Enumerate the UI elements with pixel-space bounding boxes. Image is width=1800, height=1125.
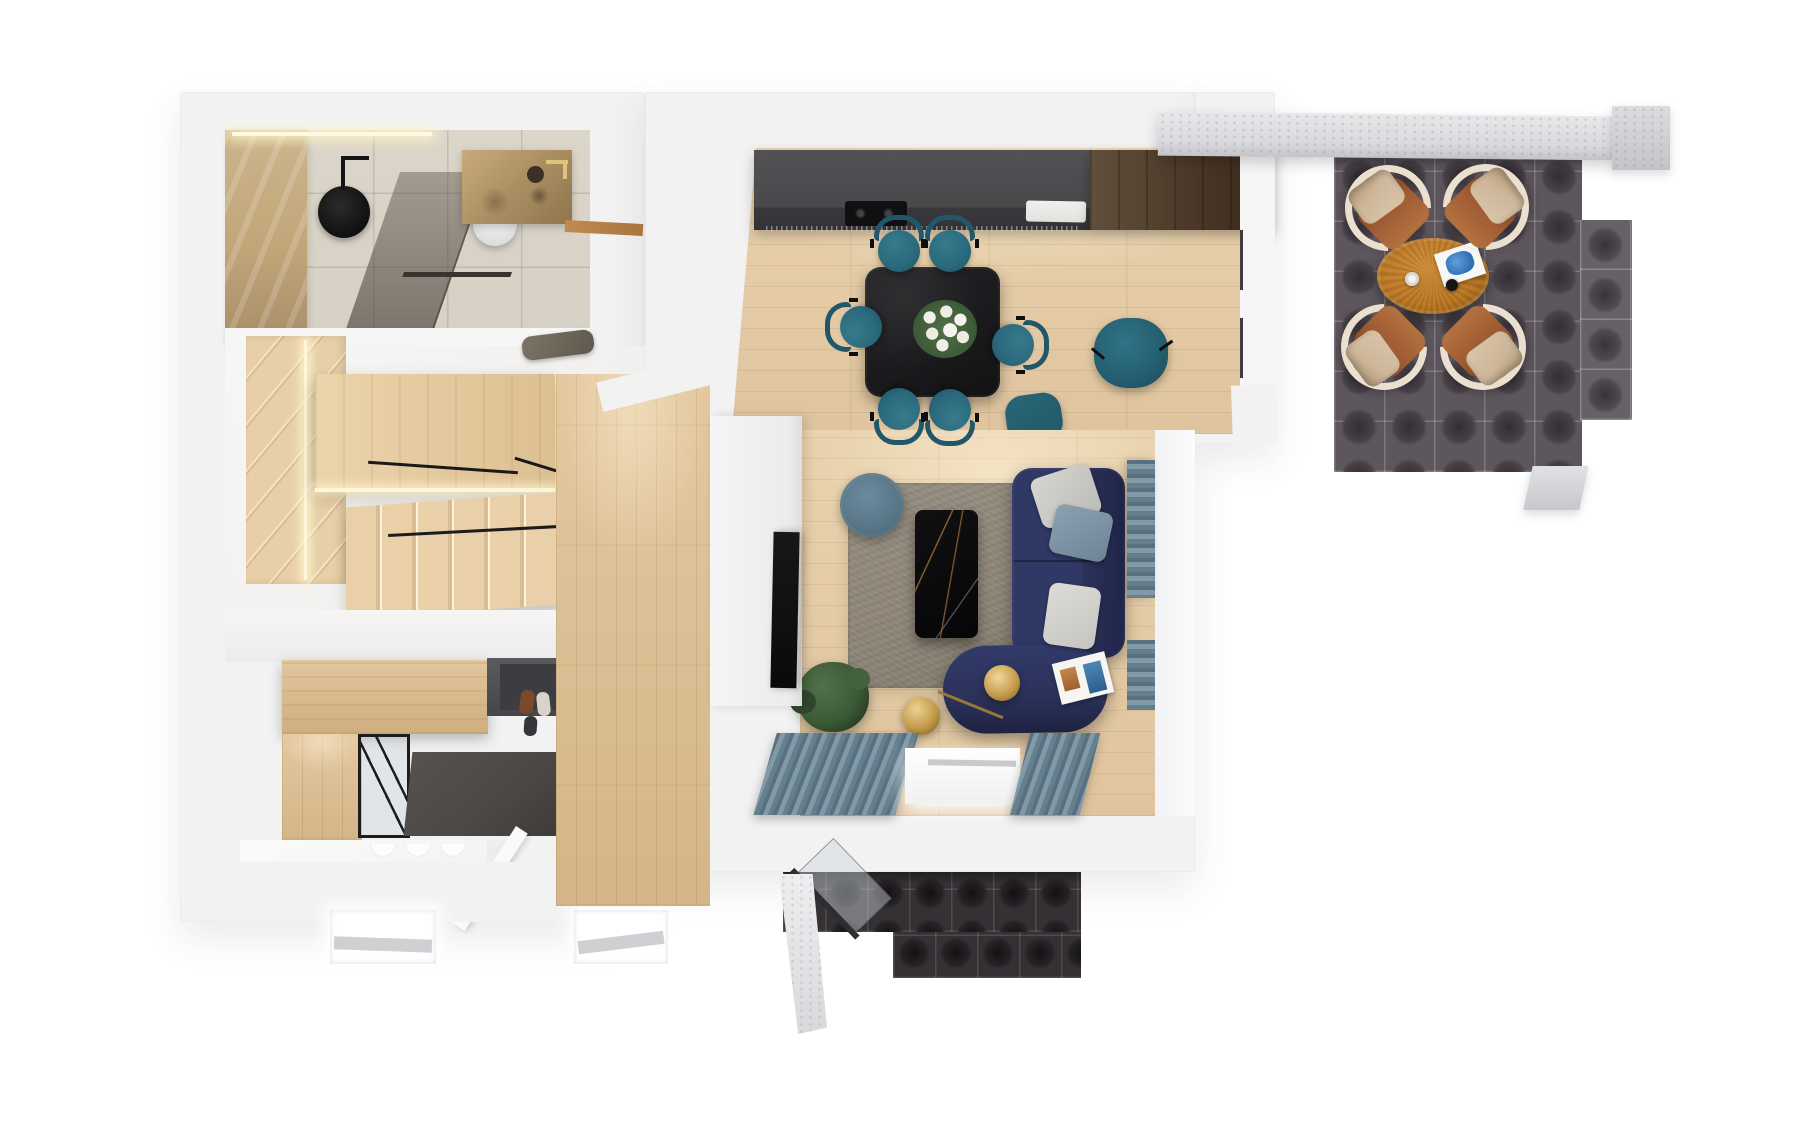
chair-leg <box>870 412 874 421</box>
chair-leg <box>1016 370 1025 374</box>
wardrobe-top <box>282 660 488 734</box>
bathroom-led-strip <box>232 132 432 136</box>
chair-leg <box>975 413 979 422</box>
shower-arm <box>341 158 345 190</box>
coffee-table <box>915 510 978 638</box>
curtain-south-left <box>753 733 919 815</box>
tv-screen <box>770 532 799 689</box>
curtain-east-2 <box>1127 640 1155 710</box>
flower-bouquet <box>913 300 977 358</box>
pergola-pillar-se <box>1523 466 1588 510</box>
round-pouf <box>840 473 904 537</box>
glass-partition <box>358 734 410 838</box>
roman-shade-1 <box>366 844 470 864</box>
dining-window-frame-b <box>1240 318 1243 378</box>
vanity-basin <box>527 166 544 183</box>
east-window-wall <box>1155 430 1195 816</box>
chair-leg <box>1016 316 1025 320</box>
stair-landing-slab <box>315 374 555 488</box>
south-terrace-tiles-lower <box>893 932 1081 978</box>
window-sill-south <box>905 748 1020 804</box>
floor-plan-render <box>0 0 1800 1125</box>
chair-seat <box>878 388 920 430</box>
dining-chair <box>922 215 978 279</box>
shoe-2 <box>536 691 551 716</box>
bathroom-marble-wall <box>225 130 307 342</box>
shoe-3 <box>523 716 537 737</box>
shower-bar <box>402 272 512 277</box>
plant-leaf-blob-2 <box>846 668 870 690</box>
dining-chair <box>871 215 927 279</box>
chair-seat <box>878 230 920 272</box>
shower-head <box>318 186 370 238</box>
chair-seat <box>992 324 1034 366</box>
pergola-pillar-ne <box>1612 106 1670 170</box>
dining-corner-wall <box>1231 384 1278 446</box>
sofa-pillow-light <box>1042 582 1102 651</box>
dining-chair <box>825 299 889 355</box>
chair-leg <box>870 239 874 248</box>
dining-chair <box>871 381 927 445</box>
east-terrace-tiles-step <box>1580 220 1632 420</box>
chair-seat <box>929 389 971 431</box>
chair-seat <box>929 230 971 272</box>
cutting-board <box>1026 200 1086 222</box>
chair-seat <box>840 306 882 348</box>
chair-leg <box>921 239 925 248</box>
coffee-cup-black <box>1446 279 1458 291</box>
entry-mat <box>404 752 573 836</box>
lamp-base-dome <box>902 697 940 735</box>
chair-leg <box>849 298 858 302</box>
lounge-chair-window <box>1094 318 1168 388</box>
chair-leg <box>975 239 979 248</box>
curtain-east <box>1127 460 1155 598</box>
hall-wood-strip <box>282 734 362 840</box>
dining-chair <box>922 382 978 446</box>
corridor-floor <box>556 374 710 906</box>
stair-led-strip <box>304 340 307 580</box>
shower-arm-top <box>341 156 369 160</box>
dining-window-frame-a <box>1240 230 1243 290</box>
dining-chair <box>985 317 1049 373</box>
lamp-head <box>984 665 1020 701</box>
chair-leg <box>849 352 858 356</box>
vanity-faucet-stem <box>563 160 567 179</box>
coffee-cup-white <box>1405 272 1419 286</box>
stair-landing-led <box>315 488 555 492</box>
chair-leg <box>921 413 925 422</box>
